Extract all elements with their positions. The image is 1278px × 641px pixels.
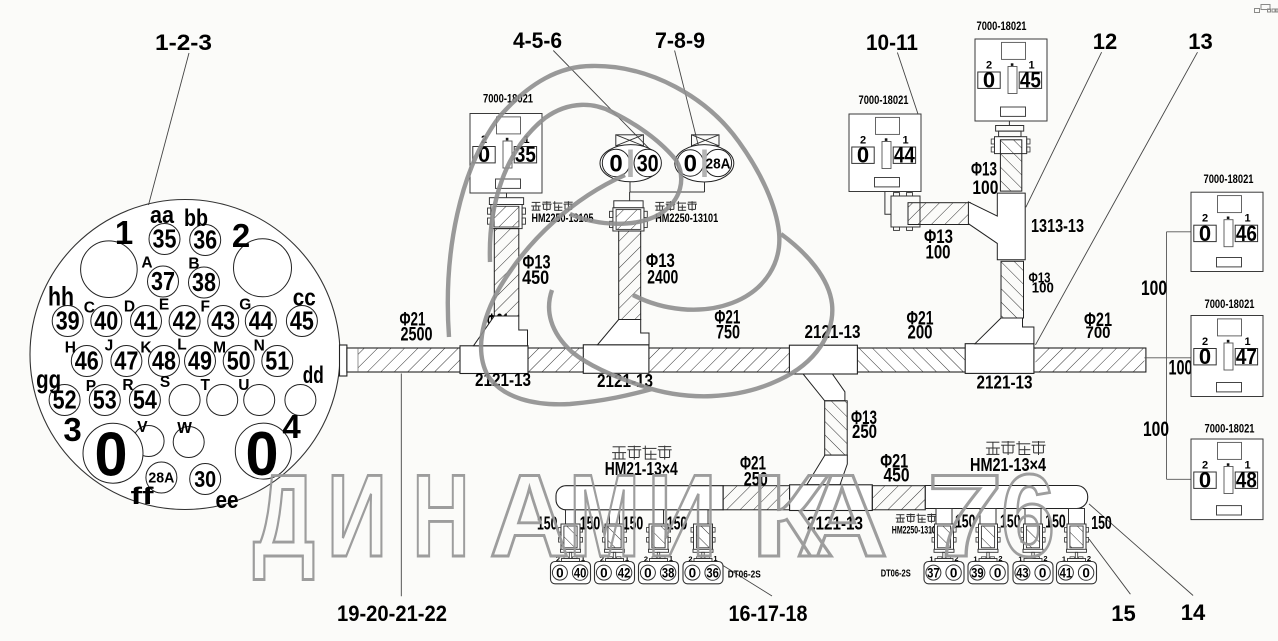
svg-text:ee: ee xyxy=(216,487,239,514)
svg-text:L: L xyxy=(177,337,186,354)
svg-text:100: 100 xyxy=(1143,418,1169,441)
svg-text:41: 41 xyxy=(134,308,158,336)
svg-text:100: 100 xyxy=(1032,281,1054,297)
svg-text:2500: 2500 xyxy=(401,325,433,346)
svg-text:W: W xyxy=(177,420,192,437)
svg-text:150: 150 xyxy=(1091,512,1112,533)
svg-text:0: 0 xyxy=(1199,468,1211,493)
svg-text:3: 3 xyxy=(63,411,81,448)
svg-text:0: 0 xyxy=(983,68,995,93)
svg-text:100: 100 xyxy=(1169,357,1193,380)
svg-text:V: V xyxy=(137,419,148,436)
svg-text:43: 43 xyxy=(211,308,235,336)
svg-text:B: B xyxy=(188,256,199,273)
svg-text:Н: Н xyxy=(413,450,470,581)
svg-text:14: 14 xyxy=(1181,600,1206,625)
svg-text:13: 13 xyxy=(1188,29,1212,54)
svg-text:46: 46 xyxy=(1236,221,1257,246)
svg-text:И: И xyxy=(327,450,387,581)
svg-text:2121-13: 2121-13 xyxy=(977,373,1033,393)
svg-text:ff: ff xyxy=(131,483,155,510)
svg-text:P: P xyxy=(86,378,96,395)
svg-text:250: 250 xyxy=(852,422,877,443)
svg-text:0: 0 xyxy=(857,143,869,168)
svg-text:G: G xyxy=(239,297,251,314)
svg-text:1: 1 xyxy=(115,214,133,251)
svg-text:46: 46 xyxy=(75,348,99,376)
svg-text:А: А xyxy=(796,450,888,581)
svg-text:30: 30 xyxy=(637,151,659,178)
svg-text:0: 0 xyxy=(684,151,697,178)
svg-text:100: 100 xyxy=(972,178,998,199)
svg-text:48: 48 xyxy=(1236,468,1257,493)
svg-text:0: 0 xyxy=(1082,565,1090,580)
svg-text:47: 47 xyxy=(114,348,138,376)
svg-text:E: E xyxy=(159,297,169,314)
svg-text:49: 49 xyxy=(188,348,212,376)
svg-text:2121-13: 2121-13 xyxy=(475,370,531,390)
svg-text:M: M xyxy=(213,340,226,357)
svg-text:100: 100 xyxy=(1141,277,1167,300)
svg-text:42: 42 xyxy=(173,308,197,336)
svg-text:12: 12 xyxy=(1093,29,1117,54)
svg-text:H: H xyxy=(65,340,76,357)
svg-text:7000-18021: 7000-18021 xyxy=(1205,422,1255,436)
svg-text:37: 37 xyxy=(151,268,175,296)
svg-text:47: 47 xyxy=(1236,344,1257,369)
svg-text:38: 38 xyxy=(192,269,216,297)
svg-text:S: S xyxy=(160,374,170,391)
svg-text:51: 51 xyxy=(265,348,289,376)
svg-text:48: 48 xyxy=(152,348,176,376)
svg-text:30: 30 xyxy=(194,466,216,492)
svg-text:A: A xyxy=(141,255,152,272)
svg-text:4-5-6: 4-5-6 xyxy=(513,28,562,53)
svg-text:4: 4 xyxy=(282,408,301,445)
svg-text:44: 44 xyxy=(894,143,916,168)
svg-text:39: 39 xyxy=(56,308,80,336)
svg-text:aa: aa xyxy=(150,202,175,229)
svg-text:45: 45 xyxy=(290,308,314,336)
svg-text:bb: bb xyxy=(184,205,208,232)
svg-text:10-11: 10-11 xyxy=(866,30,918,55)
svg-text:0: 0 xyxy=(1199,344,1211,369)
svg-text:7: 7 xyxy=(927,450,1003,581)
svg-text:35: 35 xyxy=(153,226,177,254)
svg-text:6: 6 xyxy=(1001,450,1055,581)
svg-text:200: 200 xyxy=(908,322,933,343)
svg-text:0: 0 xyxy=(1199,221,1211,246)
svg-text:7-8-9: 7-8-9 xyxy=(655,28,705,53)
svg-text:450: 450 xyxy=(522,268,549,289)
svg-text:50: 50 xyxy=(227,348,251,376)
svg-text:750: 750 xyxy=(716,322,740,343)
svg-text:N: N xyxy=(254,338,265,355)
svg-text:U: U xyxy=(238,377,249,394)
svg-text:hh: hh xyxy=(48,282,74,312)
svg-text:16-17-18: 16-17-18 xyxy=(729,601,808,626)
svg-text:100: 100 xyxy=(926,243,951,264)
svg-text:T: T xyxy=(200,377,210,394)
svg-text:45: 45 xyxy=(1020,68,1041,93)
svg-text:28A: 28A xyxy=(706,156,731,172)
svg-text:7000-18021: 7000-18021 xyxy=(859,93,909,107)
svg-text:D: D xyxy=(124,299,135,316)
svg-text:44: 44 xyxy=(249,308,274,336)
svg-text:1313-13: 1313-13 xyxy=(1031,216,1084,236)
svg-text:7000-18021: 7000-18021 xyxy=(977,19,1027,33)
svg-text:F: F xyxy=(200,299,209,316)
svg-text:2400: 2400 xyxy=(647,267,678,288)
svg-text:0: 0 xyxy=(609,151,622,178)
svg-text:J: J xyxy=(105,338,114,355)
svg-text:А: А xyxy=(490,450,570,581)
svg-text:K: K xyxy=(140,340,152,357)
svg-text:700: 700 xyxy=(1086,323,1111,342)
svg-text:0: 0 xyxy=(95,421,128,490)
svg-text:R: R xyxy=(122,377,133,394)
svg-text:19-20-21-22: 19-20-21-22 xyxy=(337,601,447,626)
svg-text:41: 41 xyxy=(1060,565,1073,580)
svg-text:2: 2 xyxy=(232,217,250,254)
svg-text:cc: cc xyxy=(293,285,316,312)
svg-text:15: 15 xyxy=(1111,601,1135,626)
svg-text:gg: gg xyxy=(36,364,61,394)
svg-text:7000-18021: 7000-18021 xyxy=(1204,172,1254,186)
svg-text:54: 54 xyxy=(133,387,158,415)
svg-text:dd: dd xyxy=(303,362,324,389)
svg-text:Д: Д xyxy=(253,450,315,581)
svg-text:40: 40 xyxy=(94,308,118,336)
svg-text:C: C xyxy=(84,300,95,317)
svg-text:И: И xyxy=(647,450,717,581)
svg-text:1-2-3: 1-2-3 xyxy=(155,30,212,55)
svg-text:М: М xyxy=(569,450,640,581)
svg-text:53: 53 xyxy=(93,387,117,415)
svg-text:7000-18021: 7000-18021 xyxy=(1205,297,1255,311)
